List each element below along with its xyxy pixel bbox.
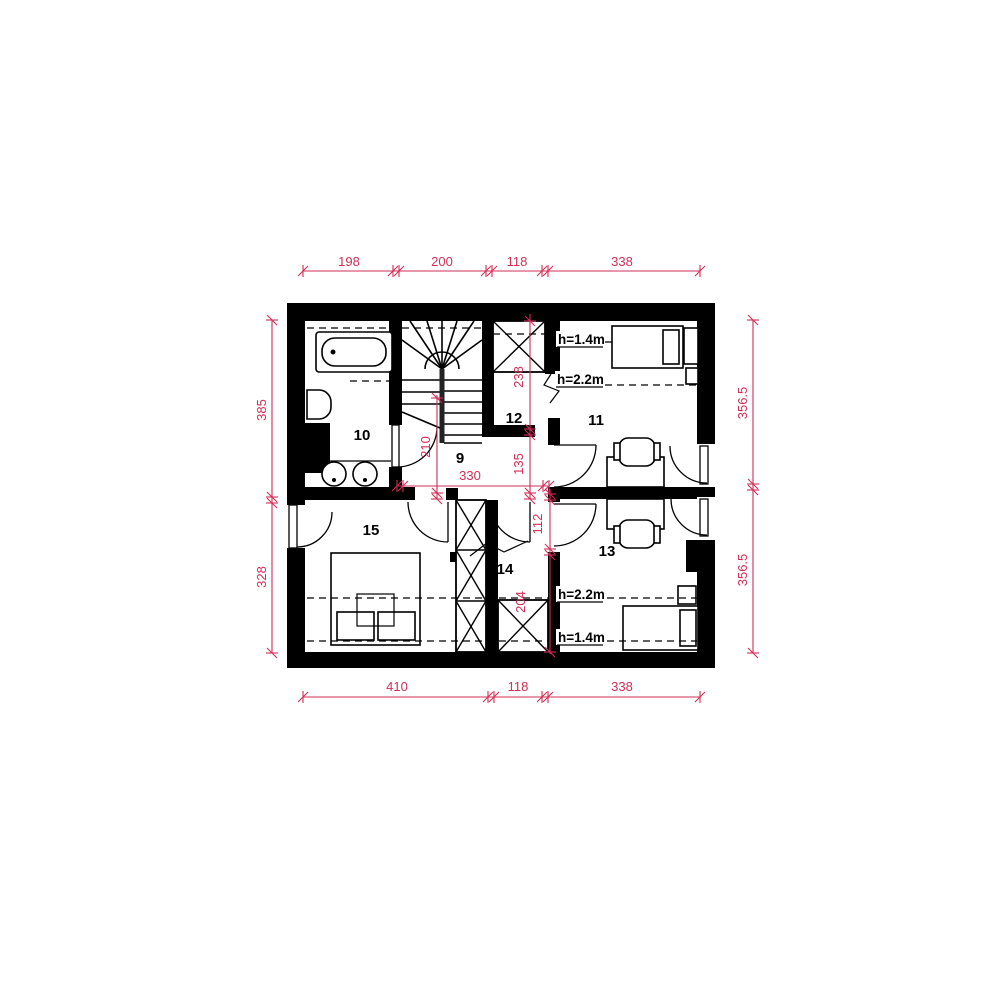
floor-plan-page: 9 10 11 12 13 14 15 h=1.4m h=2.2m h=2.2m… <box>0 0 1000 1000</box>
room-label-15: 15 <box>363 522 380 539</box>
room-label-14: 14 <box>497 561 514 578</box>
wall-bottom <box>287 652 715 668</box>
balcony-door-leaf-room11 <box>700 446 708 484</box>
sink-left <box>322 462 346 486</box>
sink-right <box>353 462 377 486</box>
room-label-12: 12 <box>506 410 523 427</box>
height-label-r13-high: h=2.2m <box>558 587 605 602</box>
door-arc-room13 <box>554 504 596 546</box>
wall-top <box>287 303 715 321</box>
door-arc-room11 <box>554 445 596 487</box>
wall-left-lower <box>287 548 305 668</box>
floor-plan-drawing: 9 10 11 12 13 14 15 h=1.4m h=2.2m h=2.2m… <box>0 0 1000 1000</box>
washbasin <box>307 390 331 419</box>
dim-right-2: 356.5 <box>735 554 750 587</box>
wall-left-upper <box>287 303 305 505</box>
wall-right-upper <box>697 303 715 444</box>
door-arc-room15 <box>408 502 448 542</box>
dim-top-1: 198 <box>338 254 360 269</box>
office-chair-room11 <box>619 438 655 466</box>
room-label-13: 13 <box>599 543 616 560</box>
room-label-10: 10 <box>354 427 371 444</box>
height-label-r13-low: h=1.4m <box>558 630 605 645</box>
wall-room10-room15 <box>287 487 415 500</box>
dim-inner-112: 112 <box>530 514 545 535</box>
balcony-door-arc-room15 <box>297 512 332 547</box>
dim-inner-135: 135 <box>511 453 526 475</box>
wall-pier-right <box>686 540 715 572</box>
door-leaf-room10 <box>392 425 399 467</box>
height-label-r11-high: h=2.2m <box>557 372 604 387</box>
balcony-door-leaf-room13 <box>700 499 708 536</box>
dim-inner-204: 204 <box>513 591 528 613</box>
dim-bottom-1: 410 <box>386 679 408 694</box>
staircase <box>402 321 482 443</box>
office-chair-room13 <box>619 520 655 548</box>
pillow <box>663 330 679 364</box>
bathtub-drain <box>331 350 336 355</box>
room-label-11: 11 <box>588 412 604 429</box>
height-label-r11-low: h=1.4m <box>558 332 605 347</box>
dim-left-2: 328 <box>254 566 269 588</box>
dim-bottom-2: 118 <box>508 679 529 694</box>
dim-inner-238: 238 <box>511 366 526 388</box>
dim-inner-210: 210 <box>418 436 433 458</box>
dim-right-1: 356.5 <box>735 387 750 420</box>
wall-right-middle <box>697 487 715 497</box>
dim-top-4: 338 <box>611 254 633 269</box>
nightstand <box>678 586 696 604</box>
dim-top-2: 200 <box>431 254 453 269</box>
wall-room11-room13 <box>548 487 697 499</box>
dim-left-1: 385 <box>254 399 269 421</box>
dim-inner-330: 330 <box>459 468 481 483</box>
nightstand <box>684 328 698 364</box>
room-label-9: 9 <box>456 450 464 467</box>
wall-pier-bathroom <box>287 423 330 473</box>
dim-bottom-3: 338 <box>611 679 633 694</box>
balcony-door-leaf-room15 <box>289 505 297 548</box>
dim-top-3: 118 <box>507 254 528 269</box>
